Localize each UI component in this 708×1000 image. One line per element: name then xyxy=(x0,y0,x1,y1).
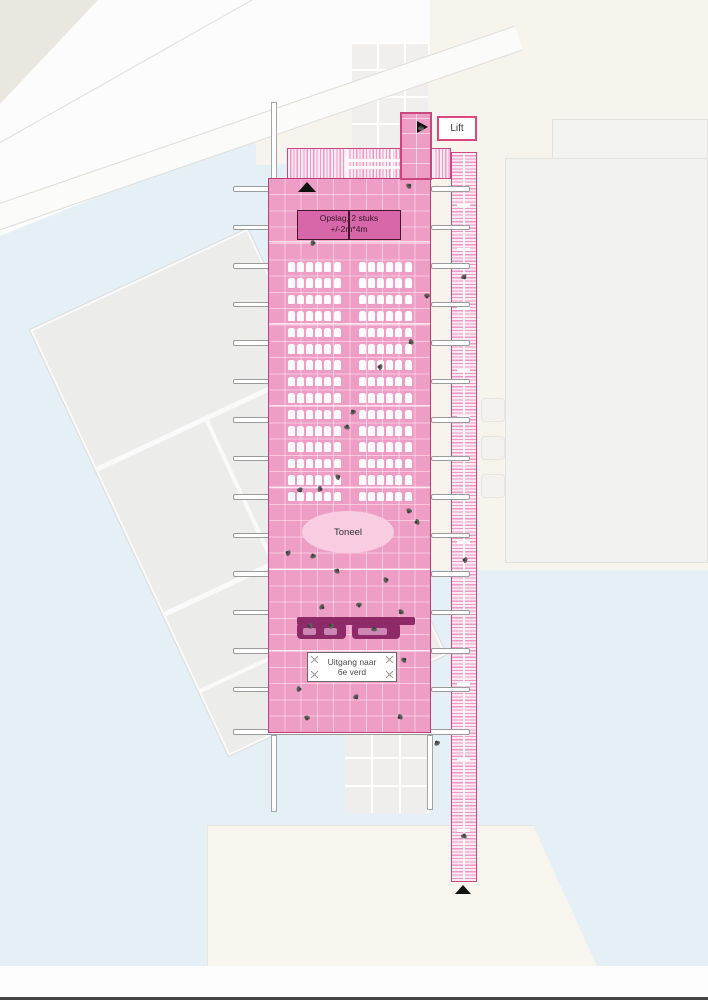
seat xyxy=(288,426,295,436)
seat xyxy=(395,360,402,370)
beam-left-stub xyxy=(233,417,272,423)
seat xyxy=(359,328,366,338)
person-figure xyxy=(417,124,425,132)
seat xyxy=(386,459,393,469)
seat xyxy=(297,377,304,387)
person-figure xyxy=(306,622,314,630)
seat xyxy=(334,360,341,370)
seat xyxy=(324,360,331,370)
seat xyxy=(395,328,402,338)
seat xyxy=(297,442,304,452)
column-left-top xyxy=(271,102,277,180)
storage-label-line1: Opslag, 2 stuks xyxy=(320,213,379,223)
seat xyxy=(359,344,366,354)
seat xyxy=(288,311,295,321)
band-divider xyxy=(346,149,348,178)
seat xyxy=(377,377,384,387)
seat xyxy=(377,295,384,305)
seat xyxy=(334,492,341,502)
seat xyxy=(395,442,402,452)
facade-column xyxy=(481,436,505,460)
seat xyxy=(368,410,375,420)
seat xyxy=(386,492,393,502)
seat xyxy=(324,262,331,272)
seat xyxy=(297,278,304,288)
seat xyxy=(324,426,331,436)
seat xyxy=(334,328,341,338)
beam-right-stub xyxy=(431,456,470,462)
beam-right-stub xyxy=(431,417,470,423)
seat xyxy=(386,278,393,288)
facade-column xyxy=(481,398,505,422)
strip-tick xyxy=(457,307,470,310)
seat xyxy=(368,278,375,288)
seat xyxy=(288,475,295,485)
seat xyxy=(315,410,322,420)
background-bottom xyxy=(0,966,708,1000)
seat xyxy=(334,295,341,305)
seat xyxy=(405,475,412,485)
beam-left-stub xyxy=(233,571,272,577)
seat xyxy=(315,426,322,436)
floor-plan-canvas: Lift Opslag, 2 stuks +/-2m*4m Toneel Uit… xyxy=(0,0,708,1000)
seat xyxy=(386,426,393,436)
seat xyxy=(359,278,366,288)
lift-label-box: Lift xyxy=(437,116,477,141)
seat xyxy=(288,262,295,272)
seat xyxy=(306,262,313,272)
exit-label-line2: 6e verd xyxy=(338,667,366,678)
seat xyxy=(368,426,375,436)
seat xyxy=(359,360,366,370)
seat xyxy=(395,410,402,420)
beam-left-stub xyxy=(233,225,272,231)
seat xyxy=(359,393,366,403)
seat xyxy=(405,360,412,370)
seat xyxy=(377,262,384,272)
person-figure xyxy=(309,239,318,248)
seat xyxy=(405,278,412,288)
seat xyxy=(297,262,304,272)
seat xyxy=(334,426,341,436)
seat xyxy=(306,311,313,321)
person-figure xyxy=(370,625,378,633)
seat xyxy=(324,328,331,338)
seat xyxy=(288,344,295,354)
strip-tick xyxy=(457,758,470,761)
beam-right-stub xyxy=(431,225,470,231)
seat xyxy=(297,344,304,354)
seat xyxy=(334,459,341,469)
seat xyxy=(288,377,295,387)
seat xyxy=(377,328,384,338)
beam-right-stub xyxy=(431,302,470,308)
seat xyxy=(315,278,322,288)
seat xyxy=(359,492,366,502)
seat xyxy=(405,295,412,305)
beam-right-stub xyxy=(431,379,470,385)
seat xyxy=(306,344,313,354)
seat xyxy=(386,328,393,338)
seat xyxy=(324,442,331,452)
beam-right-stub xyxy=(431,648,470,654)
exit-label-box: Uitgang naar 6e verd xyxy=(307,652,397,682)
beam-right-stub xyxy=(431,533,470,539)
seat xyxy=(368,311,375,321)
seat xyxy=(405,377,412,387)
seat xyxy=(297,393,304,403)
seat xyxy=(306,459,313,469)
seat xyxy=(288,410,295,420)
seat xyxy=(368,459,375,469)
seat xyxy=(306,377,313,387)
strip-tick xyxy=(457,369,470,372)
person-figure xyxy=(375,362,384,371)
seat xyxy=(288,278,295,288)
seat xyxy=(297,311,304,321)
gallery-strip xyxy=(451,152,477,882)
seat xyxy=(315,442,322,452)
building-below-grid-bottom xyxy=(345,733,430,813)
seat xyxy=(368,328,375,338)
seat xyxy=(386,410,393,420)
entrance-arrow-bottom xyxy=(455,885,471,894)
seat xyxy=(306,360,313,370)
seat xyxy=(297,459,304,469)
seat xyxy=(324,459,331,469)
seat xyxy=(377,410,384,420)
seat xyxy=(359,442,366,452)
seat xyxy=(405,410,412,420)
seat xyxy=(315,360,322,370)
seat xyxy=(386,311,393,321)
seat xyxy=(368,442,375,452)
seat xyxy=(334,311,341,321)
seat xyxy=(386,360,393,370)
seat xyxy=(315,459,322,469)
seat xyxy=(405,311,412,321)
seat xyxy=(288,360,295,370)
seat xyxy=(324,410,331,420)
seat xyxy=(359,377,366,387)
seat xyxy=(395,278,402,288)
seat xyxy=(288,442,295,452)
seat xyxy=(297,426,304,436)
seat xyxy=(315,393,322,403)
seat xyxy=(386,475,393,485)
seat xyxy=(377,344,384,354)
seat xyxy=(359,459,366,469)
seat xyxy=(297,295,304,305)
seat xyxy=(359,295,366,305)
seat xyxy=(395,311,402,321)
seat xyxy=(324,377,331,387)
seat xyxy=(377,426,384,436)
seat xyxy=(368,475,375,485)
seat xyxy=(405,426,412,436)
seat xyxy=(306,410,313,420)
seat xyxy=(324,393,331,403)
seat xyxy=(395,459,402,469)
seat xyxy=(405,393,412,403)
seat xyxy=(368,344,375,354)
beam-left-stub xyxy=(233,263,272,269)
person-figure xyxy=(355,601,364,610)
beam-left-stub xyxy=(233,648,272,654)
seat xyxy=(306,393,313,403)
strip-tick xyxy=(457,683,470,686)
seat xyxy=(386,442,393,452)
seat xyxy=(334,262,341,272)
seat xyxy=(288,459,295,469)
seat xyxy=(324,295,331,305)
seat xyxy=(334,278,341,288)
seat xyxy=(377,442,384,452)
column-right-bottom xyxy=(427,735,433,810)
seat xyxy=(395,344,402,354)
seat xyxy=(288,328,295,338)
seat xyxy=(315,328,322,338)
seat xyxy=(297,410,304,420)
person-figure xyxy=(295,685,304,694)
entrance-arrow-top xyxy=(298,182,316,192)
stair-cross-icon xyxy=(311,671,318,678)
seat xyxy=(386,344,393,354)
person-figure xyxy=(381,575,390,584)
beam-left-stub xyxy=(233,610,272,616)
seat xyxy=(377,475,384,485)
column-left-bottom xyxy=(271,735,277,812)
beam-left-stub xyxy=(233,494,272,500)
seat xyxy=(315,262,322,272)
band-divider xyxy=(391,149,393,178)
seat xyxy=(377,459,384,469)
seat xyxy=(315,295,322,305)
seat xyxy=(377,393,384,403)
seat xyxy=(405,492,412,502)
bar-counter-left xyxy=(297,623,346,639)
seat xyxy=(395,475,402,485)
seat xyxy=(315,377,322,387)
seat xyxy=(377,311,384,321)
seat xyxy=(306,442,313,452)
beam-left-stub xyxy=(233,379,272,385)
seat xyxy=(377,492,384,502)
seat xyxy=(334,377,341,387)
seat xyxy=(306,295,313,305)
seat xyxy=(324,475,331,485)
strip-tick xyxy=(457,541,470,544)
seat xyxy=(359,311,366,321)
seat xyxy=(359,426,366,436)
seat xyxy=(405,459,412,469)
seat xyxy=(368,262,375,272)
seat xyxy=(368,377,375,387)
seat xyxy=(386,262,393,272)
seat xyxy=(405,328,412,338)
beam-left-stub xyxy=(233,186,272,192)
storage-label-line2: +/-2m*4m xyxy=(330,224,367,234)
person-figure xyxy=(422,291,431,300)
stair-cross-icon xyxy=(386,656,393,663)
beam-left-stub xyxy=(233,302,272,308)
seat xyxy=(405,442,412,452)
beam-right-stub xyxy=(431,687,470,693)
seat xyxy=(395,377,402,387)
beam-left-stub xyxy=(233,340,272,346)
seat xyxy=(324,278,331,288)
beam-left-stub xyxy=(233,533,272,539)
seat xyxy=(395,426,402,436)
seat xyxy=(297,360,304,370)
seat xyxy=(405,262,412,272)
neighbor-building-lower xyxy=(505,158,708,563)
seat xyxy=(315,311,322,321)
beam-left-stub xyxy=(233,456,272,462)
seat xyxy=(288,393,295,403)
facade-column xyxy=(481,474,505,498)
strip-tick xyxy=(457,204,470,207)
seat xyxy=(306,475,313,485)
seat xyxy=(334,344,341,354)
beam-right-stub xyxy=(431,263,470,269)
stair-cross-icon xyxy=(311,656,318,663)
beam-right-stub xyxy=(431,494,470,500)
seat xyxy=(359,410,366,420)
seat xyxy=(334,393,341,403)
seat xyxy=(395,262,402,272)
beam-left-stub xyxy=(233,687,272,693)
seat xyxy=(377,278,384,288)
seat xyxy=(368,492,375,502)
seat xyxy=(297,475,304,485)
seat xyxy=(306,426,313,436)
seat xyxy=(324,492,331,502)
seat xyxy=(395,492,402,502)
seat xyxy=(334,410,341,420)
seat xyxy=(368,295,375,305)
seat xyxy=(359,475,366,485)
beam-right-stub xyxy=(431,340,470,346)
lift-shaft xyxy=(400,112,432,180)
seat xyxy=(359,262,366,272)
seat xyxy=(288,492,295,502)
seat xyxy=(288,295,295,305)
stair-cross-icon xyxy=(386,671,393,678)
seat xyxy=(386,377,393,387)
seat xyxy=(315,344,322,354)
seat xyxy=(297,328,304,338)
seat xyxy=(395,393,402,403)
seat xyxy=(334,442,341,452)
seat xyxy=(386,295,393,305)
seat xyxy=(306,278,313,288)
seat xyxy=(324,344,331,354)
stage-label: Toneel xyxy=(334,527,362,538)
seat xyxy=(368,360,375,370)
beam-right-stub xyxy=(431,571,470,577)
person-figure xyxy=(302,713,311,722)
beam-right-stub xyxy=(431,610,470,616)
seat xyxy=(395,295,402,305)
exit-label-line1: Uitgang naar xyxy=(328,657,377,668)
lift-label: Lift xyxy=(450,123,463,134)
seat xyxy=(306,492,313,502)
seat xyxy=(324,311,331,321)
seat xyxy=(306,328,313,338)
strip-tick xyxy=(457,248,470,251)
seat xyxy=(368,393,375,403)
seat xyxy=(386,393,393,403)
beam-right-stub xyxy=(431,186,470,192)
stage-ellipse: Toneel xyxy=(302,511,394,553)
